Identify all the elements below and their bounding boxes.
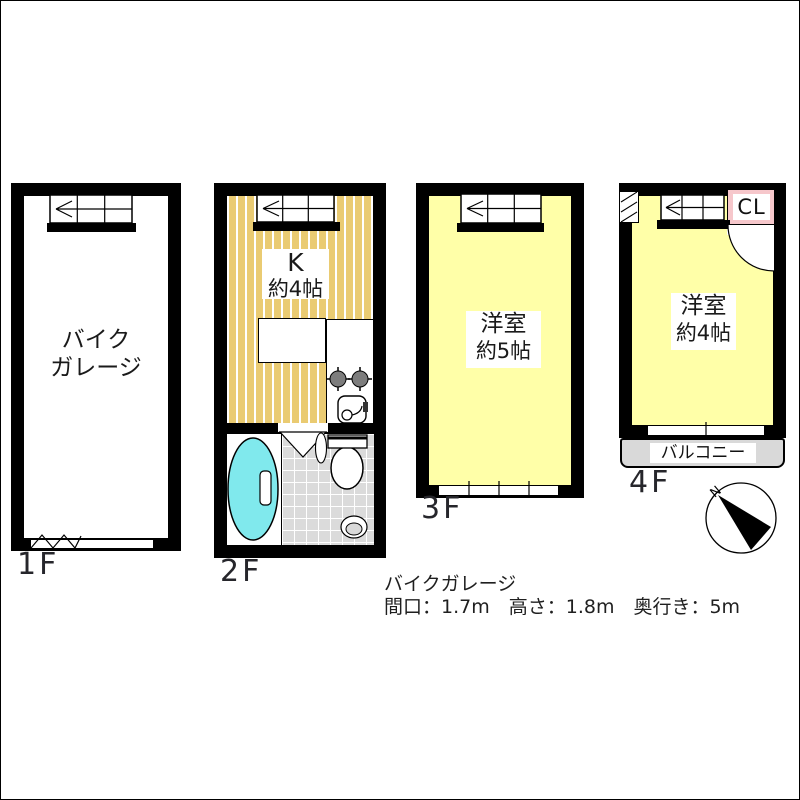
kitchen-counter xyxy=(258,318,326,363)
floorplan-page: バイク ガレージ 1F K 約4帖 2F 洋室 約5帖 3F CL xyxy=(0,0,800,800)
garage-notes-title: バイクガレージ xyxy=(384,573,516,596)
bike-garage-label-line2: ガレージ xyxy=(11,354,181,382)
bathroom-door-opening xyxy=(278,423,328,432)
window-4f xyxy=(648,426,764,435)
balcony-label: バルコニー xyxy=(650,443,756,463)
garage-notes-dimensions: 間口：1.7m 高さ：1.8m 奥行き：5m xyxy=(384,596,740,619)
kitchen-appliance-area xyxy=(326,319,373,423)
kitchen-name: K xyxy=(262,249,329,276)
floor-1f-plan: バイク ガレージ xyxy=(11,183,181,551)
kitchen-label: K 約4帖 xyxy=(262,249,329,299)
bike-garage-label-line1: バイク xyxy=(11,326,181,354)
floor-4f-caption: 4F xyxy=(629,467,671,499)
side-window-4f xyxy=(619,191,639,223)
kitchen-size: 約4帖 xyxy=(262,276,329,302)
floor-3f-plan: 洋室 約5帖 xyxy=(416,183,584,498)
floor-2f-caption: 2F xyxy=(220,556,262,588)
floor-2f-plan: K 約4帖 xyxy=(214,183,386,558)
bathroom-tile-floor xyxy=(281,434,374,545)
closet-door-opening xyxy=(727,225,774,235)
bathtub-area xyxy=(227,434,281,545)
bike-garage-label: バイク ガレージ xyxy=(11,326,181,382)
floor-3f-caption: 3F xyxy=(421,493,463,525)
north-label: N xyxy=(708,483,725,501)
closet: CL xyxy=(727,189,775,225)
floor-4f-plan: CL 洋室 約4帖 xyxy=(619,183,786,438)
room-3f-label: 洋室 約5帖 xyxy=(466,311,541,368)
compass-icon: N xyxy=(706,483,776,553)
room-3f-size: 約5帖 xyxy=(466,338,541,364)
room-3f-name: 洋室 xyxy=(466,311,541,338)
room-4f-label: 洋室 約4帖 xyxy=(671,293,736,350)
room-4f-name: 洋室 xyxy=(671,293,736,320)
floor-1f-caption: 1F xyxy=(17,549,59,581)
room-4f-size: 約4帖 xyxy=(671,320,736,346)
closet-label: CL xyxy=(733,194,770,220)
balcony: バルコニー xyxy=(620,438,785,468)
